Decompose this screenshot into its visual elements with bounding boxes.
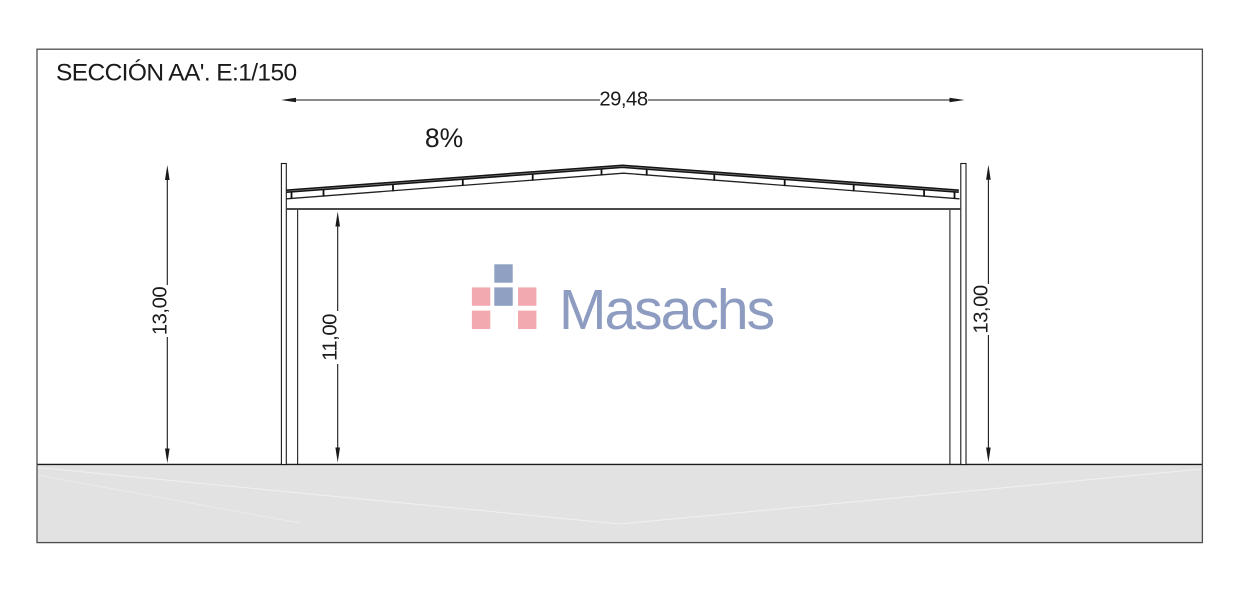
svg-text:8%: 8%: [425, 123, 463, 153]
svg-text:11,00: 11,00: [320, 314, 342, 361]
svg-text:Masachs: Masachs: [559, 278, 774, 342]
svg-text:13,00: 13,00: [149, 287, 171, 335]
svg-text:13,00: 13,00: [970, 285, 992, 333]
svg-text:SECCIÓN AA'. E:1/150: SECCIÓN AA'. E:1/150: [56, 60, 297, 87]
svg-text:29,48: 29,48: [599, 89, 647, 111]
